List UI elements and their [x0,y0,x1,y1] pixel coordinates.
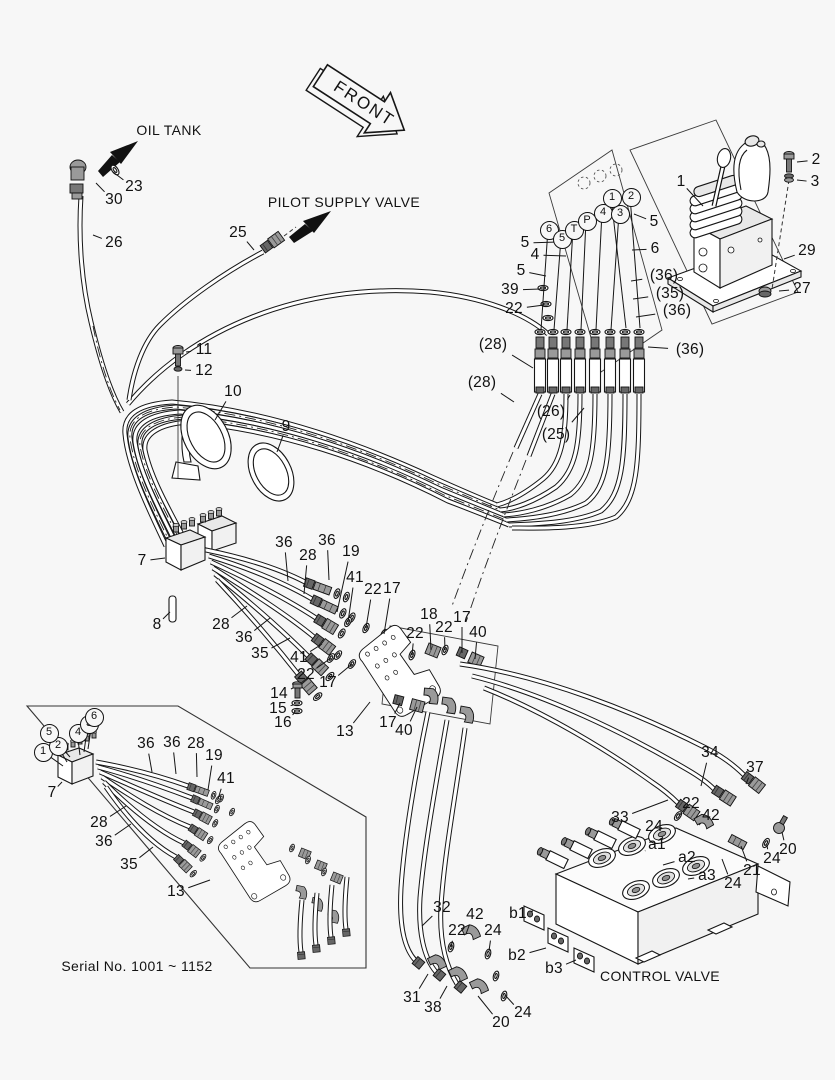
callout-8: 8 [153,616,162,634]
callout-23: 23 [125,178,143,196]
callout-40: 40 [469,624,487,642]
inset-callout-13: 13 [167,883,185,901]
callout-5: 5 [517,262,526,280]
callout-33: 33 [611,809,629,827]
port-label-2: 2 [622,188,641,207]
callout-24: 24 [763,850,781,868]
callout-5: 5 [650,213,659,231]
inset-callout-36: 36 [163,734,181,752]
callout-b2: b2 [508,947,526,965]
callout-28: 28 [212,616,230,634]
pin-8 [169,596,176,622]
washer-12 [174,367,182,371]
callout-39: 39 [501,281,519,299]
pilot-supply-valve-label: PILOT SUPPLY VALVE [268,194,420,210]
inset-callout-28: 28 [90,814,108,832]
inset-callout-7: 7 [48,784,57,802]
callout-22: 22 [435,619,453,637]
callout-12: 12 [195,362,213,380]
callout-(25): (25) [542,426,570,444]
callout-17: 17 [453,609,471,627]
callout-(26): (26) [537,403,565,421]
nut-27 [759,287,771,297]
callout-36: 36 [275,534,293,552]
callout-7: 7 [138,552,147,570]
washer-3 [785,174,794,182]
callout-(28): (28) [479,336,507,354]
callout-17: 17 [379,714,397,732]
callout-(36): (36) [650,267,678,285]
callout-42: 42 [702,807,720,825]
callout-(36): (36) [663,302,691,320]
callout-17: 17 [319,674,337,692]
callout-26: 26 [105,234,123,252]
callout-20: 20 [492,1014,510,1032]
diagram-svg [0,0,835,1080]
callout-22: 22 [406,625,424,643]
callout-22: 22 [505,300,523,318]
callout-24: 24 [514,1004,532,1022]
callout-41: 41 [290,649,308,667]
inset-callout-36: 36 [137,735,155,753]
callout-3: 3 [811,173,820,191]
callout-36: 36 [318,532,336,550]
callout-41: 41 [346,569,364,587]
callout-29: 29 [798,242,816,260]
callout-6: 6 [651,240,660,258]
callout-38: 38 [424,999,442,1017]
callout-42: 42 [466,906,484,924]
callout-5: 5 [521,234,530,252]
callout-(35): (35) [656,285,684,303]
callout-24: 24 [484,922,502,940]
callout-27: 27 [793,280,811,298]
callout-11: 11 [196,341,213,359]
serial-number-note: Serial No. 1001 ~ 1152 [61,958,212,974]
callout-16: 16 [274,714,292,732]
callout-1: 1 [677,173,686,191]
inset-port-label-6: 6 [85,708,104,727]
inset-callout-35: 35 [120,856,138,874]
callout-36: 36 [235,629,253,647]
callout-22: 22 [297,666,315,684]
callout-28: 28 [299,547,317,565]
inset-port-label-5: 5 [40,724,59,743]
inset-callout-41: 41 [217,770,235,788]
callout-b1: b1 [509,905,527,923]
callout-32: 32 [433,899,451,917]
callout-24: 24 [645,818,663,836]
oil-tank-label: OIL TANK [136,122,201,138]
callout-22: 22 [448,922,466,940]
callout-40: 40 [395,722,413,740]
callout-35: 35 [251,645,269,663]
inset-callout-36: 36 [95,833,113,851]
callout-a3: a3 [698,867,716,885]
callout-b3: b3 [545,960,563,978]
callout-22: 22 [364,581,382,599]
callout-17: 17 [383,580,401,598]
port-label-1: 1 [603,189,622,208]
callout-4: 4 [531,246,540,264]
callout-37: 37 [746,759,764,777]
callout-2: 2 [812,151,821,169]
callout-(28): (28) [468,374,496,392]
control-valve-label: CONTROL VALVE [600,968,720,984]
callout-19: 19 [342,543,360,561]
callout-20: 20 [779,841,797,859]
callout-30: 30 [105,191,123,209]
callout-25: 25 [229,224,247,242]
callout-(36): (36) [676,341,704,359]
callout-9: 9 [282,418,291,436]
callout-a1: a1 [648,836,666,854]
callout-24: 24 [724,875,742,893]
callout-22: 22 [682,795,700,813]
callout-21: 21 [743,862,761,880]
callout-a2: a2 [678,849,696,867]
callout-13: 13 [336,723,354,741]
callout-10: 10 [224,383,242,401]
parts-diagram-page: FRONT OIL TANK PILOT SUPPLY VALVE CONTRO… [0,0,835,1080]
inset-callout-28: 28 [187,735,205,753]
callout-34: 34 [701,744,719,762]
inset-callout-19: 19 [205,747,223,765]
callout-31: 31 [403,989,421,1007]
